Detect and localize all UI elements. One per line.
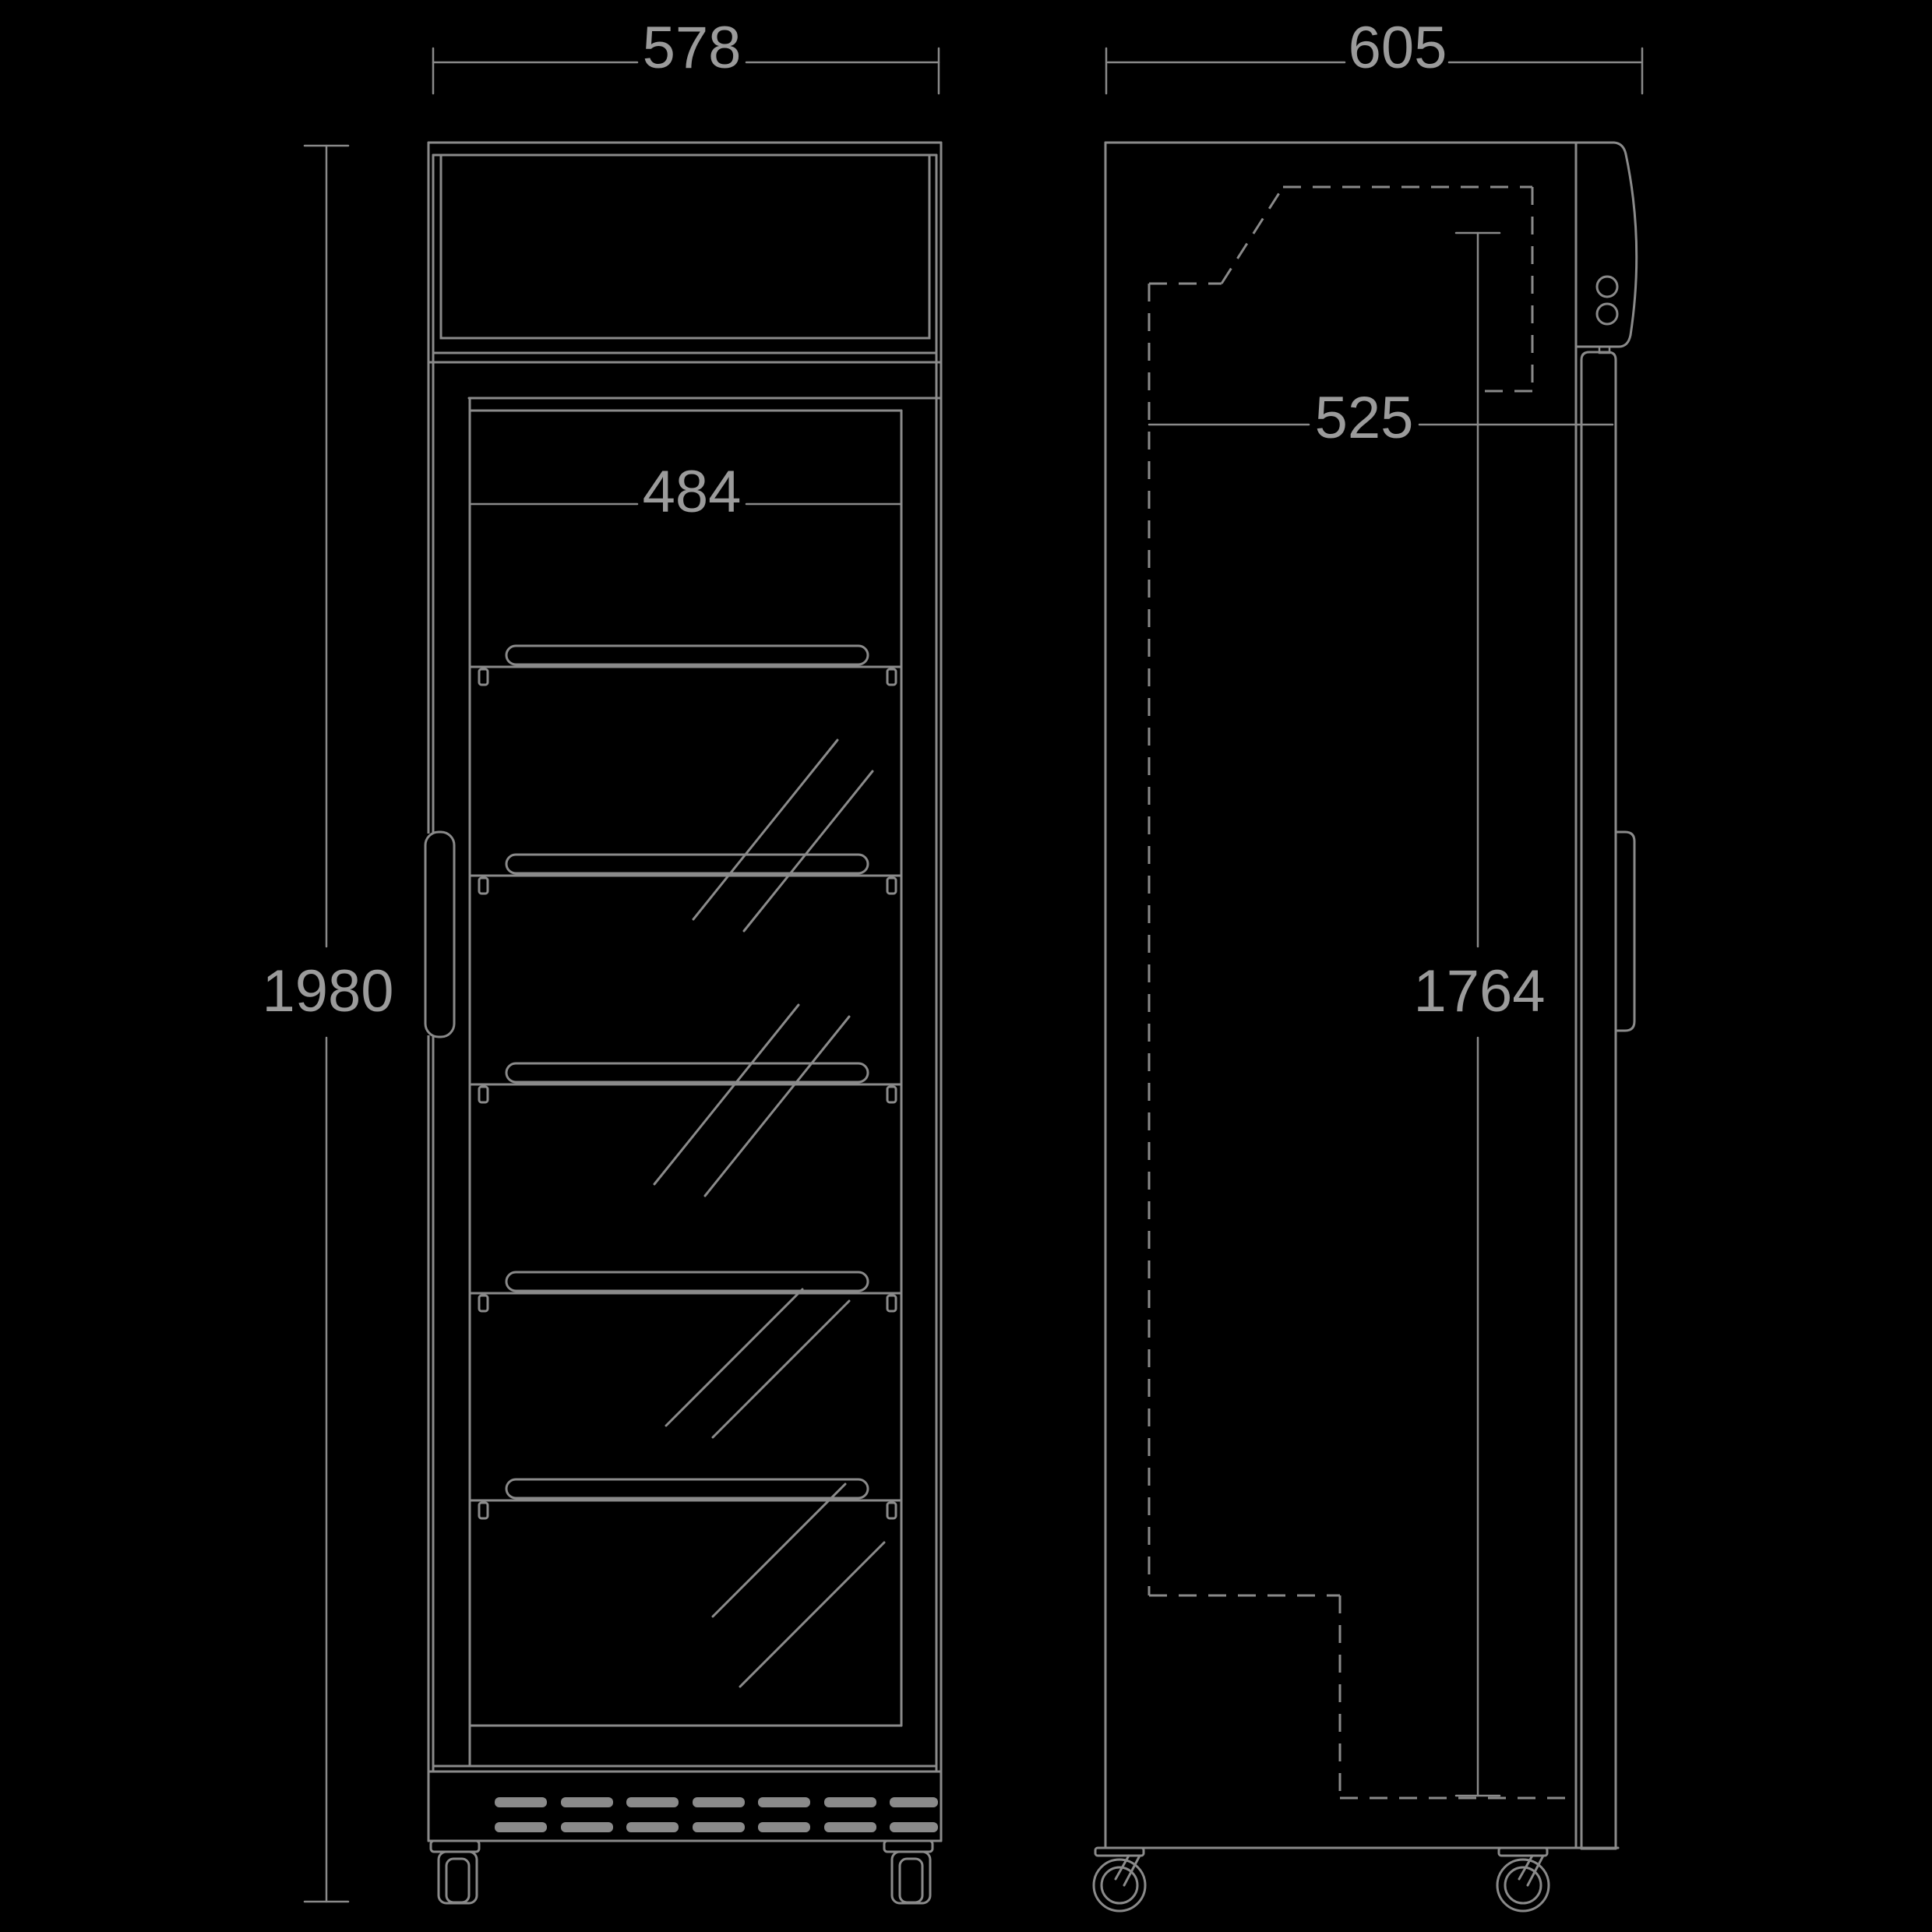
hinge-control-box [1576,143,1637,353]
side-caster-left [1094,1848,1145,1911]
glass-shine-lines [654,740,884,1687]
shelves [470,646,901,1518]
front-caster-right [884,1841,933,1903]
side-door-handle [1616,832,1634,1031]
front-caster-left [431,1841,479,1903]
dim-label-side-height: 1764 [1413,958,1545,1024]
dim-label-front-width: 578 [643,15,742,81]
dim-side-inner-depth: 525 [1149,385,1613,451]
dimension-drawing-canvas: 578 484 1980 [0,0,1932,1932]
side-door-profile [1581,352,1616,1849]
dim-front-inner-width: 484 [470,459,901,525]
vent-grille [495,1797,938,1832]
side-view: 605 525 1764 [1094,15,1642,1911]
cooler-dimension-drawing: 578 484 1980 [0,0,1932,1932]
shelf [470,1479,901,1518]
dim-label-front-inner-width: 484 [643,459,742,525]
shelf [470,1063,901,1102]
dim-side-height: 1764 [1413,233,1545,1796]
front-view: 578 484 1980 [262,15,941,1903]
dim-label-side-inner-depth: 525 [1315,385,1414,451]
dim-label-side-depth: 605 [1349,15,1447,81]
dim-front-width: 578 [433,15,939,93]
dim-label-front-height: 1980 [262,958,393,1024]
shelf [470,1272,901,1311]
door-handle [425,832,454,1037]
dim-front-height: 1980 [262,146,393,1902]
control-knob-icon [1597,277,1617,297]
dim-side-depth: 605 [1106,15,1642,93]
front-header-panel [428,155,941,362]
shelf [470,855,901,894]
side-caster-right [1497,1848,1549,1911]
control-knob-icon [1597,304,1617,324]
shelf [470,646,901,685]
